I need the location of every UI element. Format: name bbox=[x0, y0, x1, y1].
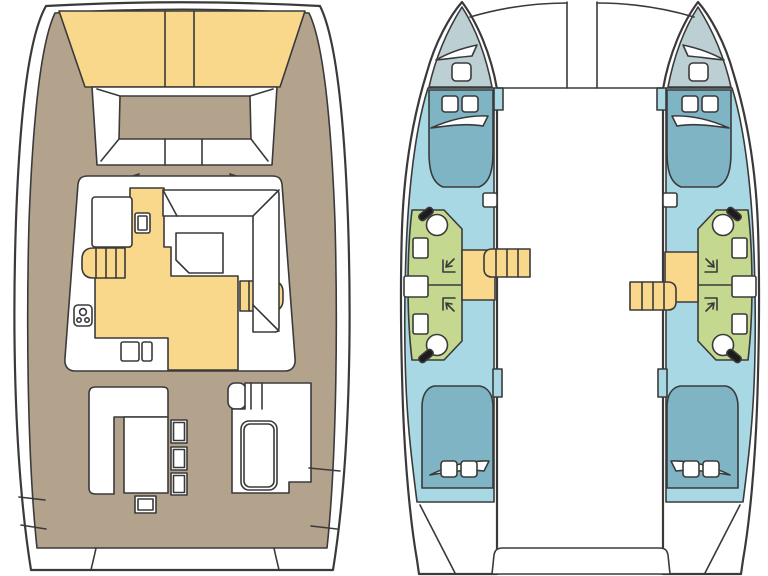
dinette-table bbox=[176, 233, 223, 273]
bow-nacelle bbox=[567, 2, 597, 88]
bow-trampoline-pads bbox=[59, 11, 305, 87]
aft-berth-pillow-right bbox=[461, 461, 477, 477]
companionway-port bbox=[82, 248, 125, 278]
deck-plan-view bbox=[14, 2, 349, 570]
hull-entry-aft bbox=[493, 369, 502, 397]
washbasin-aft bbox=[413, 314, 428, 334]
forward-berth-pillow-right bbox=[462, 96, 478, 112]
forepeak-hatch bbox=[452, 63, 471, 81]
floor-plan-canvas bbox=[0, 0, 768, 576]
forward-berth-pillow-left bbox=[442, 96, 458, 112]
cockpit-table bbox=[124, 417, 168, 493]
toilet-forward bbox=[427, 215, 448, 236]
floor-plan-page bbox=[0, 0, 768, 576]
hull-step bbox=[483, 193, 497, 207]
galley-counter bbox=[92, 197, 132, 247]
aft-sunbed bbox=[241, 421, 277, 490]
forward-berth bbox=[429, 90, 493, 187]
bow-cockpit-floor bbox=[119, 96, 251, 139]
helm-seat-tab bbox=[228, 383, 246, 409]
aft-berth-pillow-left bbox=[441, 461, 457, 477]
accommodation-plan-view bbox=[401, 2, 759, 574]
tender-platform bbox=[492, 548, 670, 574]
washbasin-forward bbox=[413, 238, 428, 258]
trampoline-front-edges bbox=[470, 3, 694, 17]
galley-sink-right bbox=[142, 342, 152, 361]
head-door bbox=[404, 276, 428, 297]
hull-entry-forward bbox=[494, 88, 503, 110]
galley-sink-left bbox=[121, 342, 139, 361]
